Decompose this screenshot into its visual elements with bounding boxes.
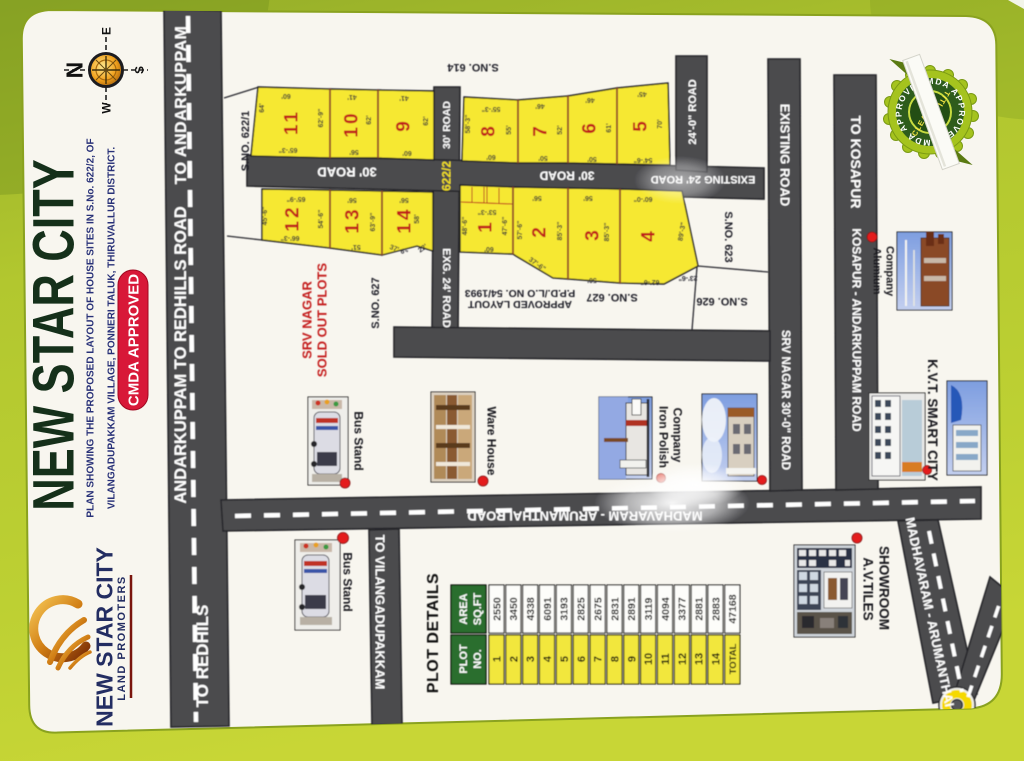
svg-text:60': 60' [402,149,412,156]
svg-text:PLAN SHOWING THE PROPOSED LAYO: PLAN SHOWING THE PROPOSED LAYOUT OF HOUS… [86,138,97,517]
svg-text:30' ROAD: 30' ROAD [539,169,594,183]
svg-text:2881: 2881 [694,597,706,621]
svg-text:85'-3": 85'-3" [557,222,564,241]
svg-text:ANDARKUPPAM TO REDHILLS ROAD: ANDARKUPPAM TO REDHILLS ROAD [172,206,190,503]
svg-text:LAND PROMOTERS: LAND PROMOTERS [116,575,128,701]
svg-text:2: 2 [530,224,551,238]
svg-text:52': 52' [557,125,564,135]
svg-text:13: 13 [343,206,364,233]
svg-text:50': 50' [587,276,597,283]
svg-text:Bus Stand: Bus Stand [352,411,366,470]
svg-text:60': 60' [486,153,496,160]
svg-text:55': 55' [506,125,513,135]
svg-text:CMDA APPROVED: CMDA APPROVED [125,274,142,406]
svg-text:4: 4 [639,228,660,242]
svg-text:TO ANDARKUPPAM: TO ANDARKUPPAM [173,26,190,185]
svg-text:55'-3": 55'-3" [482,105,501,112]
svg-text:61': 61' [606,123,613,133]
svg-text:2825: 2825 [576,597,588,621]
svg-text:2675: 2675 [592,597,604,621]
svg-text:6: 6 [576,656,588,662]
svg-text:50': 50' [587,155,597,162]
svg-text:S.NO. 614: S.NO. 614 [446,61,498,73]
svg-text:TO REDHILS: TO REDHILS [193,605,212,708]
svg-text:65'-9": 65'-9" [287,195,306,202]
svg-text:TO KOSAPUR: TO KOSAPUR [848,115,864,208]
svg-text:63'-9": 63'-9" [370,213,377,232]
svg-text:47'-6": 47'-6" [502,217,509,236]
svg-text:NO.: NO. [472,649,484,669]
svg-text:1: 1 [492,656,504,662]
svg-text:66'-3": 66'-3" [281,234,300,241]
svg-text:23'-6": 23'-6" [679,274,698,281]
svg-text:Company: Company [671,408,685,463]
svg-text:10: 10 [643,653,655,665]
svg-text:14: 14 [395,206,416,233]
svg-text:4338: 4338 [525,597,537,621]
svg-text:N: N [61,62,87,79]
svg-text:AREA: AREA [458,593,470,624]
svg-text:Iron Polish: Iron Polish [657,406,671,468]
svg-text:9: 9 [394,118,415,132]
svg-text:6091: 6091 [542,597,554,621]
svg-text:PLOT: PLOT [458,644,470,674]
svg-text:3: 3 [525,656,537,662]
svg-text:46': 46' [535,102,545,109]
svg-text:54'-6": 54'-6" [634,156,653,163]
svg-text:62': 62' [366,115,373,125]
svg-text:NEW STAR CITY: NEW STAR CITY [91,547,117,727]
svg-text:56': 56' [532,194,542,201]
svg-text:S: S [132,66,146,74]
svg-text:W: W [99,102,113,114]
svg-text:57'-6": 57'-6" [517,221,524,240]
svg-text:45'-6": 45'-6" [262,207,269,226]
svg-text:54'-6": 54'-6" [318,210,325,229]
svg-text:51': 51' [351,243,361,250]
svg-text:SHOWROOM: SHOWROOM [877,546,892,630]
svg-text:Bus Stand: Bus Stand [341,552,355,611]
svg-text:53'-3": 53'-3" [478,208,497,215]
svg-text:PLOT DETAILS: PLOT DETAILS [425,573,442,693]
svg-text:62'-6": 62'-6" [641,278,660,285]
svg-text:4094: 4094 [660,597,672,621]
svg-text:46': 46' [585,96,595,103]
svg-text:2831: 2831 [609,597,621,621]
svg-text:S.NO. 627: S.NO. 627 [586,291,637,303]
svg-text:E: E [99,27,113,35]
svg-text:S.NO. 622/1: S.NO. 622/1 [240,111,252,172]
svg-text:NEW STAR CITY: NEW STAR CITY [22,159,87,511]
svg-text:30' ROAD: 30' ROAD [441,101,453,149]
svg-text:60': 60' [281,92,291,99]
svg-text:56': 56' [349,148,359,155]
svg-text:58': 58' [414,214,421,224]
svg-text:2883: 2883 [710,597,722,621]
svg-text:S.NO. 623: S.NO. 623 [722,211,734,262]
svg-text:Alumium: Alumium [871,247,883,294]
svg-text:30' ROAD: 30' ROAD [317,164,376,179]
svg-text:70': 70' [657,119,664,129]
svg-text:SRV NAGAR 30'-0" ROAD: SRV NAGAR 30'-0" ROAD [779,330,791,470]
svg-text:Ware House: Ware House [485,407,499,476]
svg-text:SQ.FT: SQ.FT [472,593,484,626]
svg-text:1: 1 [476,219,497,233]
svg-text:56': 56' [583,194,593,201]
svg-text:56': 56' [347,196,357,203]
svg-text:10: 10 [342,110,363,137]
svg-text:12: 12 [283,204,304,231]
svg-text:S.NO. 626: S.NO. 626 [696,295,747,307]
svg-text:7: 7 [531,123,552,137]
svg-text:9: 9 [626,656,638,662]
svg-text:45': 45' [637,90,647,97]
svg-text:50': 50' [538,154,548,161]
svg-text:TO VILANGADUPAKKAM: TO VILANGADUPAKKAM [372,535,387,690]
svg-text:SRV NAGAR: SRV NAGAR [300,281,315,359]
svg-text:6: 6 [580,120,601,134]
svg-text:48'-6": 48'-6" [462,217,469,236]
svg-text:SOLD OUT PLOTS: SOLD OUT PLOTS [315,263,330,377]
svg-text:EXISTING ROAD: EXISTING ROAD [777,104,792,207]
svg-text:KOSAPUR - ANDARKUPPAM ROAD: KOSAPUR - ANDARKUPPAM ROAD [850,228,864,432]
svg-text:3: 3 [583,227,604,241]
svg-text:47168: 47168 [727,594,739,623]
svg-text:TOTAL: TOTAL [728,643,739,674]
svg-text:P.P.D./L.O NO. 54/1993: P.P.D./L.O NO. 54/1993 [465,287,576,299]
svg-text:62'-9": 62'-9" [318,109,325,128]
svg-text:3193: 3193 [559,597,571,621]
svg-text:A.V.TILES: A.V.TILES [861,557,876,620]
svg-text:11: 11 [282,109,303,135]
svg-text:3377: 3377 [677,597,689,621]
svg-text:2891: 2891 [626,597,638,621]
svg-text:2: 2 [508,656,520,662]
svg-text:41': 41' [347,93,357,100]
svg-text:62': 62' [423,116,430,126]
svg-text:85'-3": 85'-3" [604,223,611,242]
svg-text:3119: 3119 [643,597,655,620]
svg-text:Company: Company [884,246,896,297]
svg-text:S.NO. 627: S.NO. 627 [370,277,382,328]
svg-text:EXG. 24' ROAD: EXG. 24' ROAD [440,248,452,328]
svg-text:24'-0" ROAD: 24'-0" ROAD [687,79,699,144]
svg-text:VILANGADUPAKKAM VILLAGE, PONNE: VILANGADUPAKKAM VILLAGE, PONNERI TALUK, … [107,147,118,509]
svg-text:64': 64' [259,103,266,113]
svg-text:2550: 2550 [491,597,503,621]
svg-text:12: 12 [677,653,689,665]
svg-text:13: 13 [694,653,706,665]
svg-text:14: 14 [711,652,723,665]
svg-text:11: 11 [660,653,672,665]
svg-text:K.V.T. SMART CITY: K.V.T. SMART CITY [925,359,940,481]
svg-text:4: 4 [542,655,554,662]
svg-text:41': 41' [399,94,409,101]
svg-text:622/2: 622/2 [439,161,453,191]
svg-text:8: 8 [610,656,622,662]
svg-text:65'-3": 65'-3" [279,146,298,153]
svg-text:7: 7 [593,656,605,662]
svg-text:60': 60' [484,245,494,252]
svg-text:3450: 3450 [508,597,520,621]
svg-text:58'-3": 58'-3" [465,115,472,134]
svg-text:8: 8 [479,123,500,137]
svg-text:5: 5 [631,118,652,132]
svg-text:56': 56' [399,196,409,203]
svg-text:5: 5 [559,656,571,662]
